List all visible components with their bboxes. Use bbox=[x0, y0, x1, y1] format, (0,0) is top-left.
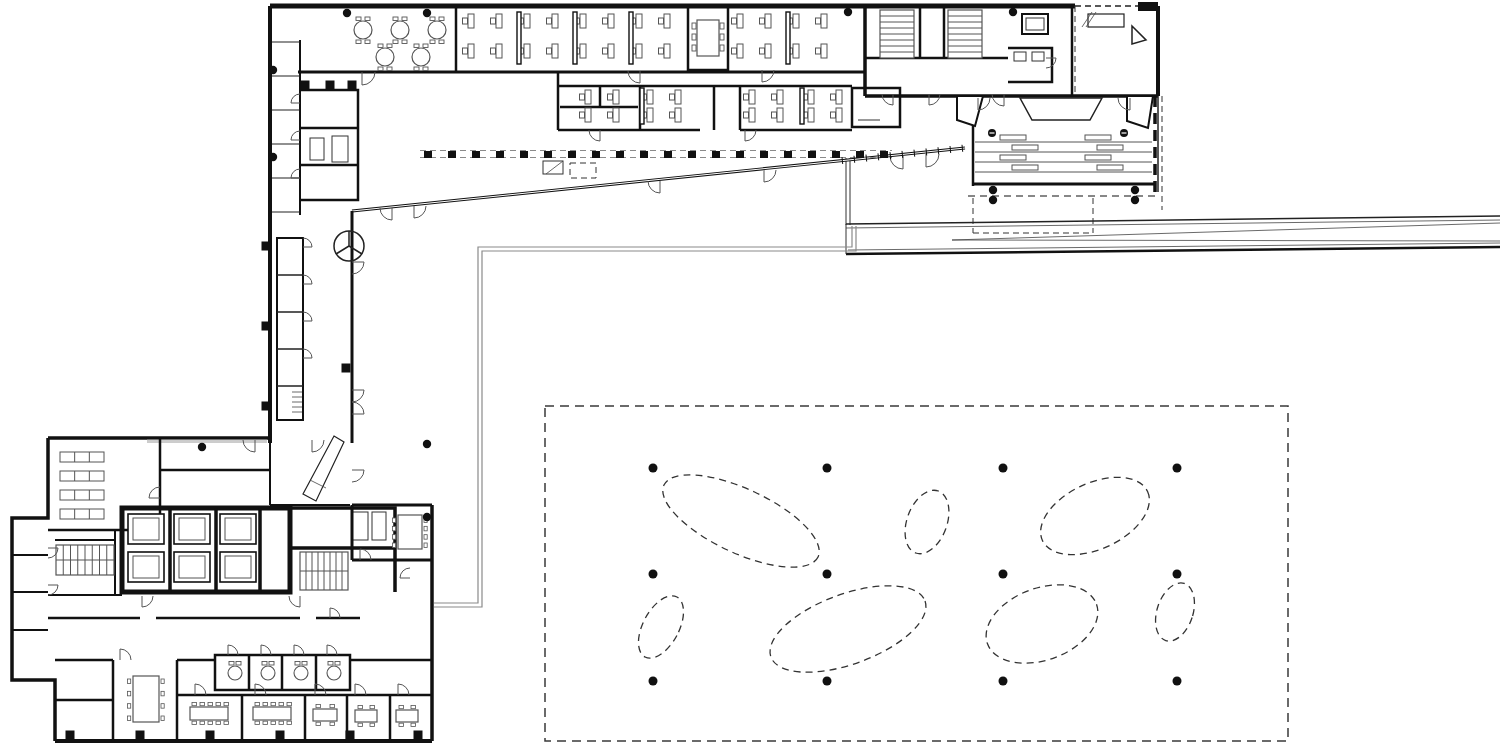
seating-row-table bbox=[1085, 135, 1111, 140]
door-swing bbox=[291, 131, 300, 140]
elevator-car bbox=[179, 518, 205, 540]
shelf-unit bbox=[60, 452, 104, 462]
table-chair bbox=[208, 721, 213, 724]
entrance-door-wedge bbox=[1132, 26, 1146, 44]
column-dot bbox=[423, 440, 431, 448]
table-chair bbox=[271, 721, 276, 724]
desk bbox=[836, 108, 842, 122]
table-chair bbox=[302, 662, 307, 666]
table-chair bbox=[439, 17, 444, 21]
desk bbox=[765, 14, 771, 28]
table-chair bbox=[161, 716, 164, 721]
desk-chair bbox=[816, 18, 821, 24]
table-chair bbox=[328, 662, 333, 666]
ramp-bottom-edge bbox=[846, 247, 1500, 254]
atrium-strip-dividers bbox=[277, 275, 303, 386]
tree-canopy-ellipse bbox=[1028, 462, 1161, 571]
round-table bbox=[428, 21, 446, 39]
copier-equipment-2 bbox=[332, 136, 348, 162]
desk bbox=[636, 44, 642, 58]
table-chair bbox=[414, 44, 419, 48]
door-swing bbox=[289, 596, 300, 607]
table-chair bbox=[692, 34, 696, 40]
door-swing bbox=[195, 684, 206, 695]
desk-chair bbox=[608, 94, 613, 100]
door-swing bbox=[400, 568, 410, 578]
table-chair bbox=[335, 662, 340, 666]
column-square bbox=[136, 731, 145, 740]
desk-partition bbox=[629, 12, 633, 64]
column-square bbox=[276, 731, 285, 740]
annex-fixture-2 bbox=[372, 512, 386, 540]
table-chair bbox=[287, 703, 292, 706]
table-chair bbox=[393, 518, 396, 523]
table-chair bbox=[414, 67, 419, 71]
table-chair bbox=[358, 723, 363, 726]
door-swing bbox=[120, 649, 131, 660]
tree-canopy-ellipse bbox=[1149, 578, 1202, 646]
desk-chair bbox=[760, 18, 765, 24]
desk-chair bbox=[491, 48, 496, 54]
desk-partition bbox=[786, 12, 790, 64]
door-swing bbox=[48, 585, 58, 595]
courtyard-layer bbox=[545, 406, 1288, 741]
floor-plan-page bbox=[0, 0, 1500, 745]
column-dot bbox=[269, 66, 277, 74]
table-chair bbox=[411, 706, 416, 709]
table-chair bbox=[262, 662, 267, 666]
wall-hatch-tick bbox=[926, 148, 927, 155]
table-chair bbox=[356, 40, 361, 44]
column-square bbox=[262, 242, 271, 251]
track-block bbox=[808, 151, 816, 158]
column-dot bbox=[269, 153, 277, 161]
round-table bbox=[354, 21, 372, 39]
table-chair bbox=[393, 543, 396, 548]
table-chair bbox=[393, 526, 396, 531]
desk-partition bbox=[640, 88, 644, 124]
dashed-equipment-zone bbox=[570, 163, 596, 178]
courtyard-column-dot bbox=[999, 570, 1008, 579]
copy-room-walls bbox=[300, 90, 358, 200]
table-chair bbox=[216, 721, 221, 724]
wall-hatch-tick bbox=[902, 151, 903, 158]
column-square bbox=[262, 322, 271, 331]
column-square bbox=[66, 731, 75, 740]
door-swing bbox=[360, 549, 371, 560]
roomette-table bbox=[261, 666, 275, 680]
seating-row-table bbox=[1085, 155, 1111, 160]
track-block bbox=[592, 151, 600, 158]
table-chair bbox=[692, 23, 696, 29]
table-chair bbox=[216, 703, 221, 706]
column-dot bbox=[343, 9, 351, 17]
desk bbox=[808, 108, 814, 122]
desk-partition bbox=[800, 88, 804, 124]
desk-chair bbox=[547, 18, 552, 24]
track-block bbox=[856, 151, 864, 158]
track-block bbox=[688, 151, 696, 158]
door-swing bbox=[294, 645, 304, 655]
track-block bbox=[616, 151, 624, 158]
tree-canopy-ellipse bbox=[650, 456, 831, 586]
door-swing bbox=[352, 262, 364, 274]
track-block bbox=[568, 151, 576, 158]
seating-row-table bbox=[1097, 145, 1123, 150]
table-chair bbox=[387, 44, 392, 48]
desk bbox=[524, 44, 530, 58]
walkway-inner-line bbox=[434, 226, 856, 607]
auditorium-left-vestibule bbox=[957, 96, 983, 126]
desk bbox=[821, 14, 827, 28]
desk-chair bbox=[608, 112, 613, 118]
track-block bbox=[424, 151, 432, 158]
door-swing bbox=[764, 170, 776, 182]
tree-canopy-ellipse bbox=[629, 589, 693, 666]
courtyard-column-dot bbox=[1173, 570, 1182, 579]
wall-hatch-tick bbox=[890, 152, 891, 159]
track-block bbox=[664, 151, 672, 158]
covered-walkway bbox=[434, 226, 856, 607]
desk bbox=[765, 44, 771, 58]
auditorium-stage bbox=[1020, 98, 1102, 120]
courtyard-column-dot bbox=[823, 464, 832, 473]
courtyard-column-dot bbox=[1173, 464, 1182, 473]
table-chair bbox=[720, 34, 724, 40]
table-chair bbox=[692, 45, 696, 51]
courtyard-column-dot bbox=[999, 464, 1008, 473]
meeting-table bbox=[190, 707, 228, 720]
entry-sculpture bbox=[303, 436, 344, 501]
tree-canopy-ellipse bbox=[897, 484, 957, 560]
round-table bbox=[391, 21, 409, 39]
courtyard-column-dot bbox=[649, 677, 658, 686]
band2-right-room bbox=[852, 88, 900, 127]
table-chair bbox=[271, 703, 276, 706]
ramp-connector-double bbox=[846, 158, 850, 225]
door-swing bbox=[352, 390, 364, 402]
meeting-table bbox=[253, 707, 291, 720]
desk bbox=[468, 44, 474, 58]
roomette-table bbox=[228, 666, 242, 680]
table-chair bbox=[365, 40, 370, 44]
wall-hatch-tick bbox=[854, 156, 855, 163]
desk bbox=[737, 44, 743, 58]
meeting-table bbox=[398, 515, 422, 549]
track-block bbox=[448, 151, 456, 158]
desk bbox=[580, 14, 586, 28]
door-swing bbox=[589, 130, 600, 141]
track-block bbox=[880, 151, 888, 158]
door-swing bbox=[303, 312, 312, 321]
desk-chair bbox=[670, 94, 675, 100]
auditorium-right-vestibule bbox=[1127, 96, 1153, 128]
column-square bbox=[414, 731, 423, 740]
table-chair bbox=[387, 67, 392, 71]
table-chair bbox=[316, 722, 321, 725]
desk-chair bbox=[760, 48, 765, 54]
table-chair bbox=[295, 662, 300, 666]
desk-chair bbox=[670, 112, 675, 118]
track-block bbox=[712, 151, 720, 158]
round-table bbox=[376, 48, 394, 66]
desk bbox=[580, 44, 586, 58]
desk-chair bbox=[547, 48, 552, 54]
seating-row-table bbox=[1000, 135, 1026, 140]
door-swing bbox=[228, 645, 238, 655]
table-chair bbox=[208, 703, 213, 706]
desk-chair bbox=[659, 48, 664, 54]
table-chair bbox=[358, 706, 363, 709]
track-block bbox=[736, 151, 744, 158]
desk bbox=[675, 108, 681, 122]
table-chair bbox=[370, 706, 375, 709]
column-dot bbox=[1131, 186, 1139, 194]
door-swing bbox=[291, 169, 300, 178]
table-chair bbox=[161, 704, 164, 709]
door-swing bbox=[261, 645, 271, 655]
table-chair bbox=[378, 44, 383, 48]
table-chair bbox=[255, 703, 260, 706]
desk bbox=[647, 90, 653, 104]
desk-partition bbox=[517, 12, 521, 64]
door-swing bbox=[149, 487, 160, 498]
desk-chair bbox=[603, 18, 608, 24]
door-swing bbox=[142, 596, 153, 607]
table-chair bbox=[192, 721, 197, 724]
desk bbox=[636, 14, 642, 28]
seating-row-table bbox=[1012, 165, 1038, 170]
auditorium bbox=[957, 96, 1162, 233]
table-chair bbox=[424, 535, 427, 540]
table-chair bbox=[365, 17, 370, 21]
door-swing bbox=[352, 470, 364, 482]
table-chair bbox=[229, 662, 234, 666]
table-chair bbox=[393, 535, 396, 540]
courtyard-column-dot bbox=[823, 570, 832, 579]
block-west-outline bbox=[12, 438, 55, 741]
walkway-outer-line bbox=[434, 226, 852, 603]
meeting-table bbox=[313, 709, 337, 721]
elevator-car bbox=[225, 518, 251, 540]
desk bbox=[613, 108, 619, 122]
column-dot bbox=[423, 9, 431, 17]
desk-chair bbox=[659, 18, 664, 24]
desk-chair bbox=[772, 112, 777, 118]
desk bbox=[737, 14, 743, 28]
desk-chair bbox=[603, 48, 608, 54]
door-swing bbox=[303, 238, 312, 247]
table-chair bbox=[399, 706, 404, 709]
column-dot bbox=[198, 443, 206, 451]
table-chair bbox=[370, 723, 375, 726]
desk bbox=[821, 44, 827, 58]
desk-chair bbox=[732, 18, 737, 24]
table-chair bbox=[393, 40, 398, 44]
courtyard-column-dot bbox=[823, 677, 832, 686]
desk bbox=[777, 108, 783, 122]
table-chair bbox=[224, 703, 229, 706]
seating-row-table bbox=[1000, 155, 1026, 160]
elevator-car bbox=[225, 556, 251, 578]
table-chair bbox=[402, 17, 407, 21]
west-annex-dividers bbox=[12, 555, 48, 630]
door-swing bbox=[926, 154, 939, 167]
tree-canopy-ellipse bbox=[759, 568, 937, 690]
desk bbox=[613, 90, 619, 104]
table-chair bbox=[330, 722, 335, 725]
lower-block bbox=[12, 436, 432, 741]
column-dot bbox=[989, 186, 997, 194]
track-block bbox=[640, 151, 648, 158]
service-lift-car bbox=[1026, 18, 1044, 30]
wall-hatch-tick bbox=[962, 145, 963, 152]
elevator-car bbox=[133, 518, 159, 540]
door-swing bbox=[745, 130, 756, 141]
table-chair bbox=[263, 721, 268, 724]
desk bbox=[836, 90, 842, 104]
desk-chair bbox=[580, 112, 585, 118]
table-chair bbox=[161, 679, 164, 684]
shelf-unit bbox=[60, 490, 104, 500]
table-chair bbox=[402, 40, 407, 44]
table-chair bbox=[430, 40, 435, 44]
shelf-unit bbox=[60, 471, 104, 481]
desk bbox=[647, 108, 653, 122]
northeast-corner-block bbox=[1138, 2, 1158, 11]
table-chair bbox=[255, 721, 260, 724]
table-chair bbox=[263, 703, 268, 706]
courtyard-column-dot bbox=[649, 464, 658, 473]
meeting-table bbox=[396, 710, 418, 722]
table-chair bbox=[356, 17, 361, 21]
table-chair bbox=[224, 721, 229, 724]
column-dot bbox=[423, 513, 431, 521]
table-chair bbox=[236, 662, 241, 666]
floor-plan-drawing bbox=[0, 0, 1500, 745]
table-chair bbox=[411, 723, 416, 726]
roomette-table bbox=[327, 666, 341, 680]
track-block bbox=[520, 151, 528, 158]
desk bbox=[664, 14, 670, 28]
seating-row-table bbox=[1097, 165, 1123, 170]
track-block bbox=[784, 151, 792, 158]
track-block bbox=[496, 151, 504, 158]
table-chair bbox=[128, 716, 131, 721]
door-swing bbox=[303, 349, 312, 358]
desk bbox=[496, 44, 502, 58]
table-chair bbox=[287, 721, 292, 724]
table-chair bbox=[330, 705, 335, 708]
door-swing bbox=[303, 275, 312, 284]
desk bbox=[585, 90, 591, 104]
courtyard-column-dot bbox=[999, 677, 1008, 686]
desk bbox=[552, 14, 558, 28]
desk bbox=[675, 90, 681, 104]
wall-hatch-tick bbox=[938, 147, 939, 154]
seating-row-table bbox=[1012, 145, 1038, 150]
table-chair bbox=[424, 543, 427, 548]
desk-chair bbox=[831, 112, 836, 118]
door-swing bbox=[398, 684, 409, 695]
column-dot bbox=[989, 196, 997, 204]
atrium-strip-shelving bbox=[292, 392, 302, 412]
atrium-strip-rooms bbox=[277, 238, 303, 420]
column-square bbox=[262, 402, 271, 411]
ramp-top-edge-inner bbox=[846, 220, 1500, 228]
desk-chair bbox=[816, 48, 821, 54]
wall-hatch-tick bbox=[950, 146, 951, 153]
door-swing bbox=[414, 206, 426, 218]
table-chair bbox=[316, 705, 321, 708]
roomette-table bbox=[294, 666, 308, 680]
desk-chair bbox=[744, 112, 749, 118]
desk bbox=[524, 14, 530, 28]
desk bbox=[585, 108, 591, 122]
copier-equipment bbox=[310, 138, 324, 160]
door-swing bbox=[355, 684, 366, 695]
desk-chair bbox=[463, 18, 468, 24]
atrium-wing bbox=[277, 148, 965, 443]
wc-fixture-2 bbox=[1032, 52, 1044, 61]
column-dot bbox=[1131, 196, 1139, 204]
desk-chair bbox=[831, 94, 836, 100]
column-square bbox=[348, 81, 357, 90]
table-chair bbox=[720, 45, 724, 51]
courtyard-column-dot bbox=[649, 570, 658, 579]
table-chair bbox=[399, 723, 404, 726]
table-chair bbox=[128, 691, 131, 696]
desk-chair bbox=[744, 94, 749, 100]
table-chair bbox=[393, 17, 398, 21]
table-chair bbox=[424, 526, 427, 531]
desk-chair bbox=[580, 94, 585, 100]
desk bbox=[777, 90, 783, 104]
desk bbox=[793, 44, 799, 58]
desk-chair bbox=[491, 18, 496, 24]
table-chair bbox=[200, 721, 205, 724]
shelf-unit bbox=[60, 509, 104, 519]
track-block bbox=[472, 151, 480, 158]
desk-chair bbox=[772, 94, 777, 100]
table-chair bbox=[378, 67, 383, 71]
wall-hatch-tick bbox=[878, 153, 879, 160]
door-swing bbox=[291, 94, 300, 103]
desk-partition bbox=[573, 12, 577, 64]
meeting-table bbox=[355, 710, 377, 722]
printer-table-hatch bbox=[546, 161, 563, 174]
table-chair bbox=[430, 17, 435, 21]
desk bbox=[608, 44, 614, 58]
table-chair bbox=[200, 703, 205, 706]
round-table bbox=[412, 48, 430, 66]
table-chair bbox=[423, 67, 428, 71]
ramp-top-edge bbox=[846, 216, 1500, 224]
table-chair bbox=[423, 44, 428, 48]
desk bbox=[793, 14, 799, 28]
desk bbox=[468, 14, 474, 28]
meeting-table bbox=[133, 676, 159, 722]
annex-fixture bbox=[352, 512, 368, 540]
door-swing bbox=[362, 72, 375, 85]
column-dot bbox=[1009, 8, 1017, 16]
elevator-car bbox=[179, 556, 205, 578]
desk bbox=[552, 44, 558, 58]
table-chair bbox=[439, 40, 444, 44]
column-square bbox=[326, 81, 335, 90]
table-chair bbox=[269, 662, 274, 666]
table-chair bbox=[128, 679, 131, 684]
